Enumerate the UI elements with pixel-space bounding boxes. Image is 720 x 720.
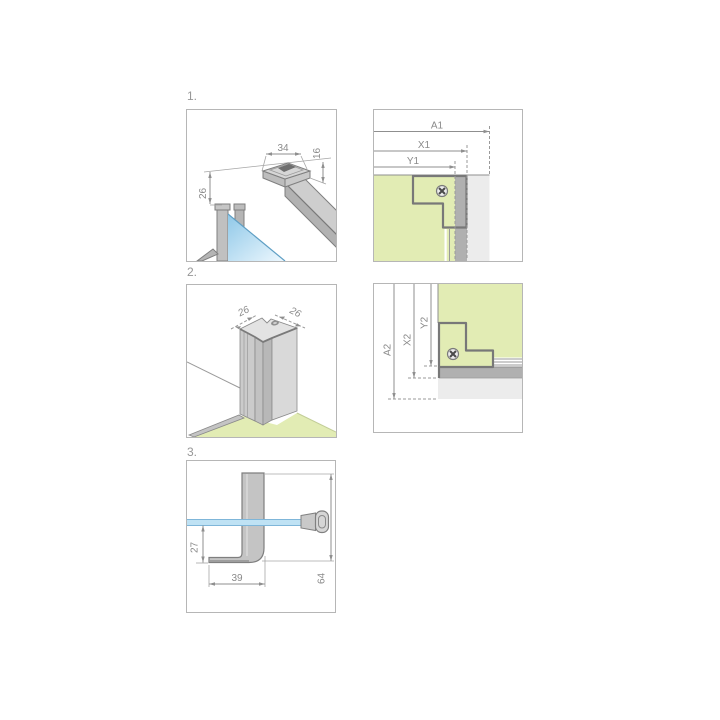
- wall-profile-strip: [438, 367, 522, 378]
- step-1-label: 1.: [187, 90, 197, 102]
- step2-drawing: 26 26: [187, 285, 336, 437]
- dimension-A1: A1: [374, 121, 490, 175]
- svg-text:64: 64: [317, 572, 328, 584]
- wall-band: [438, 378, 522, 399]
- svg-text:34: 34: [277, 143, 289, 154]
- panel-detail1: A1 X1 Y1: [373, 109, 523, 262]
- dimension-drop: 27: [190, 526, 209, 564]
- dimension-drop: 26: [198, 172, 222, 205]
- seal-gap: [445, 229, 447, 261]
- panel-step1: 34 16 26: [186, 109, 337, 262]
- svg-text:Y1: Y1: [407, 156, 420, 167]
- panel-step3: 27 39 64: [186, 460, 336, 613]
- wall-band: [467, 175, 490, 261]
- svg-text:A1: A1: [431, 121, 444, 132]
- svg-text:A2: A2: [383, 343, 394, 356]
- detail2-drawing: A2 X2 Y2: [374, 284, 522, 432]
- svg-text:26: 26: [198, 187, 209, 199]
- wall-profile-strip: [455, 175, 467, 261]
- svg-text:Y2: Y2: [420, 316, 431, 329]
- corner-profile: [240, 318, 297, 425]
- step-3-label: 3.: [187, 446, 197, 458]
- instruction-sheet: 1. 2. 3.: [0, 0, 720, 720]
- detail1-drawing: A1 X1 Y1: [374, 110, 522, 261]
- svg-text:26: 26: [236, 304, 252, 320]
- dimension-X2: X2: [403, 284, 439, 378]
- svg-text:X1: X1: [418, 140, 431, 151]
- svg-text:X2: X2: [403, 333, 414, 346]
- support-bracket: [209, 473, 264, 563]
- svg-text:39: 39: [231, 573, 243, 584]
- svg-text:27: 27: [190, 541, 201, 553]
- bottom-profile: [197, 249, 218, 261]
- dimension-head-height: 16: [310, 147, 326, 184]
- wall-profile-arm: [285, 178, 336, 249]
- glass-panel: [187, 520, 301, 526]
- svg-text:16: 16: [312, 147, 323, 159]
- phillips-screw-icon: [448, 349, 459, 360]
- step3-drawing: 27 39 64: [187, 461, 335, 612]
- step-2-label: 2.: [187, 266, 197, 278]
- phillips-screw-icon: [437, 186, 448, 197]
- dimension-Y2: Y2: [420, 284, 439, 366]
- panel-detail2: A2 X2 Y2: [373, 283, 523, 433]
- wall-line: [187, 362, 240, 388]
- glass-clamp-end: [301, 511, 329, 533]
- panel-step2: 26 26: [186, 284, 337, 438]
- svg-text:26: 26: [287, 305, 303, 321]
- step1-drawing: 34 16 26: [187, 110, 336, 261]
